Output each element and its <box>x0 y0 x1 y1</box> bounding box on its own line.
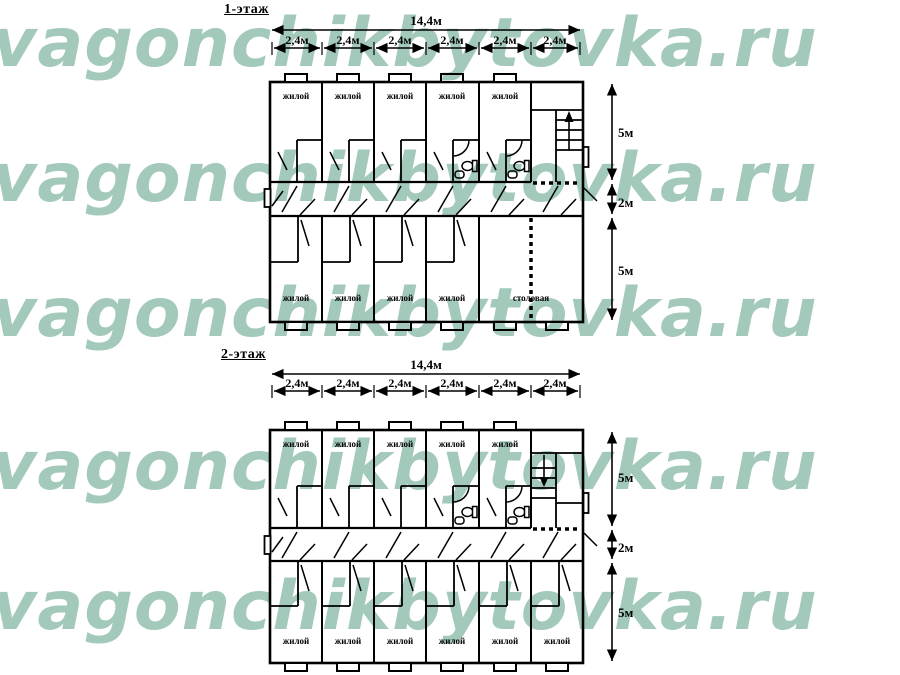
dimension-label: 2,4м <box>285 33 308 47</box>
room-label: жилой <box>283 293 309 303</box>
dimension-label: 5м <box>618 470 634 485</box>
arrow-down-icon <box>540 477 549 487</box>
sink-icon <box>455 517 517 524</box>
dimension-label: 2,4м <box>440 376 463 390</box>
room-label: жилой <box>544 636 570 646</box>
room-label: жилой <box>387 636 413 646</box>
dimension-label: 2,4м <box>543 376 566 390</box>
dimension-label: 14,4м <box>410 13 442 28</box>
dimension-label: 2,4м <box>493 33 516 47</box>
room-label: столовая <box>513 293 549 303</box>
room-label: жилой <box>439 636 465 646</box>
floor1-plan: 14,4м 2,4м 2,4м 2,4м 2,4м 2,4м 2,4м <box>265 13 634 330</box>
dimension-label: 2,4м <box>493 376 516 390</box>
dimension-label: 2,4м <box>388 33 411 47</box>
room-label: жилой <box>283 91 309 101</box>
room-label: жилой <box>335 293 361 303</box>
sink-icon <box>455 171 517 178</box>
room-label: жилой <box>492 636 518 646</box>
floor-plans-drawing: 14,4м 2,4м 2,4м 2,4м 2,4м 2,4м 2,4м <box>0 0 900 675</box>
floor-plan-page: 1-этаж 2-этаж 14,4м 2,4м 2 <box>0 0 900 675</box>
dimension-label: 2,4м <box>388 376 411 390</box>
arrow-up-icon <box>565 111 574 122</box>
room-label: жилой <box>439 439 465 449</box>
room-label: жилой <box>335 636 361 646</box>
dimension-label: 5м <box>618 263 634 278</box>
dimension-label: 2,4м <box>285 376 308 390</box>
dimension-label: 2,4м <box>336 33 359 47</box>
entrance-door-right <box>584 493 589 513</box>
room-label: жилой <box>439 91 465 101</box>
floor2-plan: 14,4м 2,4м 2,4м 2,4м 2,4м 2,4м 2,4м <box>265 357 634 671</box>
room-label: жилой <box>387 439 413 449</box>
stairs-up-icon <box>531 110 583 182</box>
floor1-title: 1-этаж <box>224 2 269 18</box>
floor2-door-swings <box>272 486 597 591</box>
floor2-walls <box>270 430 583 663</box>
room-label: жилой <box>492 91 518 101</box>
dimension-label: 2,4м <box>543 33 566 47</box>
room-label: жилой <box>387 293 413 303</box>
dimension-label: 2,4м <box>336 376 359 390</box>
entrance-door-left <box>265 536 271 554</box>
floor2-dimensions-top: 14,4м 2,4м 2,4м 2,4м 2,4м 2,4м 2,4м <box>272 357 580 398</box>
dimension-label: 14,4м <box>410 357 442 372</box>
dimension-label: 2,4м <box>440 33 463 47</box>
stairs-down-icon <box>531 453 583 528</box>
room-label: жилой <box>335 439 361 449</box>
floor1-walls <box>270 82 583 322</box>
dimension-label: 2м <box>618 540 634 555</box>
floor2-title: 2-этаж <box>221 347 266 363</box>
dimension-label: 5м <box>618 605 634 620</box>
dimension-label: 5м <box>618 125 634 140</box>
room-label: жилой <box>335 91 361 101</box>
room-label: жилой <box>439 293 465 303</box>
entrance-door-left <box>265 189 271 207</box>
floor1-dimensions-top: 14,4м 2,4м 2,4м 2,4м 2,4м 2,4м 2,4м <box>272 13 580 55</box>
entrance-door-right <box>584 147 589 167</box>
floor1-door-swings <box>272 140 597 246</box>
room-label: жилой <box>492 439 518 449</box>
room-label: жилой <box>283 636 309 646</box>
room-label: жилой <box>283 439 309 449</box>
room-label: жилой <box>387 91 413 101</box>
dimension-label: 2м <box>618 195 634 210</box>
